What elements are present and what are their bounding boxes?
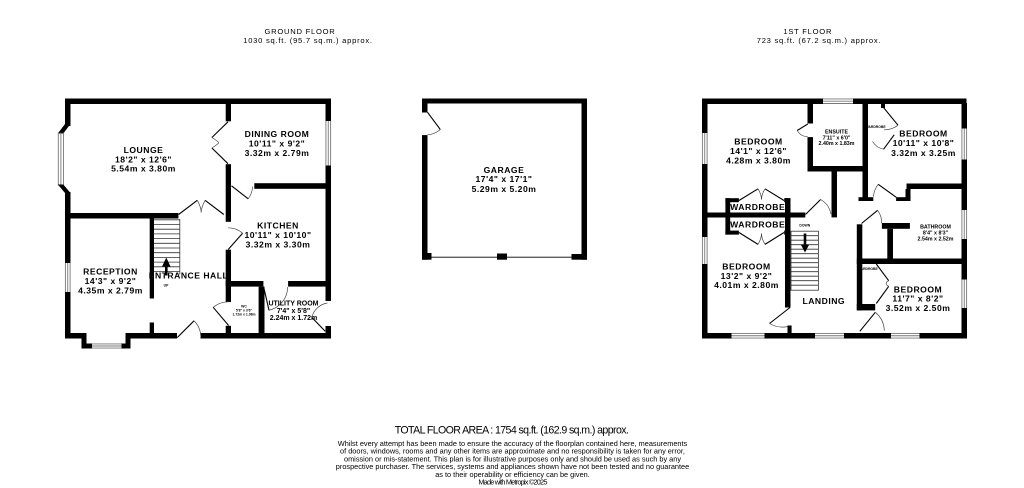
svg-text:LANDING: LANDING: [802, 296, 845, 306]
svg-text:BEDROOM: BEDROOM: [899, 129, 947, 139]
svg-text:2.40m x 1.83m: 2.40m x 1.83m: [819, 141, 855, 147]
svg-text:UP: UP: [164, 284, 169, 288]
svg-text:10'11" x 10'8": 10'11" x 10'8": [893, 138, 955, 148]
svg-text:1.72m x 1.08m: 1.72m x 1.08m: [233, 313, 256, 317]
svg-text:WARDROBE: WARDROBE: [865, 125, 886, 129]
svg-text:2.24m x 1.72m: 2.24m x 1.72m: [270, 315, 317, 322]
svg-text:4.28m x 3.80m: 4.28m x 3.80m: [726, 155, 791, 165]
svg-text:RECEPTION: RECEPTION: [83, 266, 138, 276]
svg-text:UTILITY ROOM: UTILITY ROOM: [268, 301, 318, 308]
svg-text:8'4" x 8'3": 8'4" x 8'3": [923, 231, 949, 237]
svg-text:4.35m x 2.79m: 4.35m x 2.79m: [78, 286, 143, 296]
svg-text:1ST FLOOR: 1ST FLOOR: [783, 27, 832, 36]
svg-text:723 sq.ft. (67.2 sq.m.) approx: 723 sq.ft. (67.2 sq.m.) approx.: [757, 36, 882, 45]
svg-text:7'4" x 5'8": 7'4" x 5'8": [277, 308, 310, 315]
svg-text:4.01m x 2.80m: 4.01m x 2.80m: [714, 280, 779, 290]
svg-text:DINING ROOM: DINING ROOM: [245, 129, 310, 139]
svg-text:TOTAL FLOOR AREA : 1754 sq.ft.: TOTAL FLOOR AREA : 1754 sq.ft. (162.9 sq…: [395, 425, 629, 437]
svg-text:5.54m x 3.80m: 5.54m x 3.80m: [111, 164, 176, 174]
svg-text:2.54m x 2.52m: 2.54m x 2.52m: [918, 237, 954, 243]
svg-text:LOUNGE: LOUNGE: [124, 145, 164, 155]
svg-text:WARDROBE: WARDROBE: [730, 220, 785, 230]
svg-text:3.52m x 2.50m: 3.52m x 2.50m: [886, 303, 951, 313]
svg-text:BEDROOM: BEDROOM: [734, 137, 782, 147]
svg-text:GROUND FLOOR: GROUND FLOOR: [264, 27, 335, 36]
svg-text:WARDROBE: WARDROBE: [858, 267, 879, 271]
svg-text:5.29m x 5.20m: 5.29m x 5.20m: [472, 184, 537, 194]
svg-text:17'4" x 17'1": 17'4" x 17'1": [476, 174, 533, 184]
svg-text:1030 sq.ft. (95.7 sq.m.) appro: 1030 sq.ft. (95.7 sq.m.) approx.: [243, 36, 373, 45]
svg-text:3.32m x 3.25m: 3.32m x 3.25m: [891, 148, 956, 158]
svg-text:10'11" x 9'2": 10'11" x 9'2": [249, 138, 306, 148]
svg-text:WARDROBE: WARDROBE: [730, 202, 785, 212]
svg-text:14'3" x 9'2": 14'3" x 9'2": [85, 276, 137, 286]
svg-text:Made with Metropix ©2025: Made with Metropix ©2025: [478, 478, 547, 487]
svg-text:3.32m x 3.30m: 3.32m x 3.30m: [246, 239, 311, 249]
svg-text:ENTRANCE HALL: ENTRANCE HALL: [149, 271, 229, 281]
svg-text:DOWN: DOWN: [799, 223, 810, 227]
svg-text:3.32m x 2.79m: 3.32m x 2.79m: [245, 148, 310, 158]
svg-text:KITCHEN: KITCHEN: [257, 220, 299, 230]
